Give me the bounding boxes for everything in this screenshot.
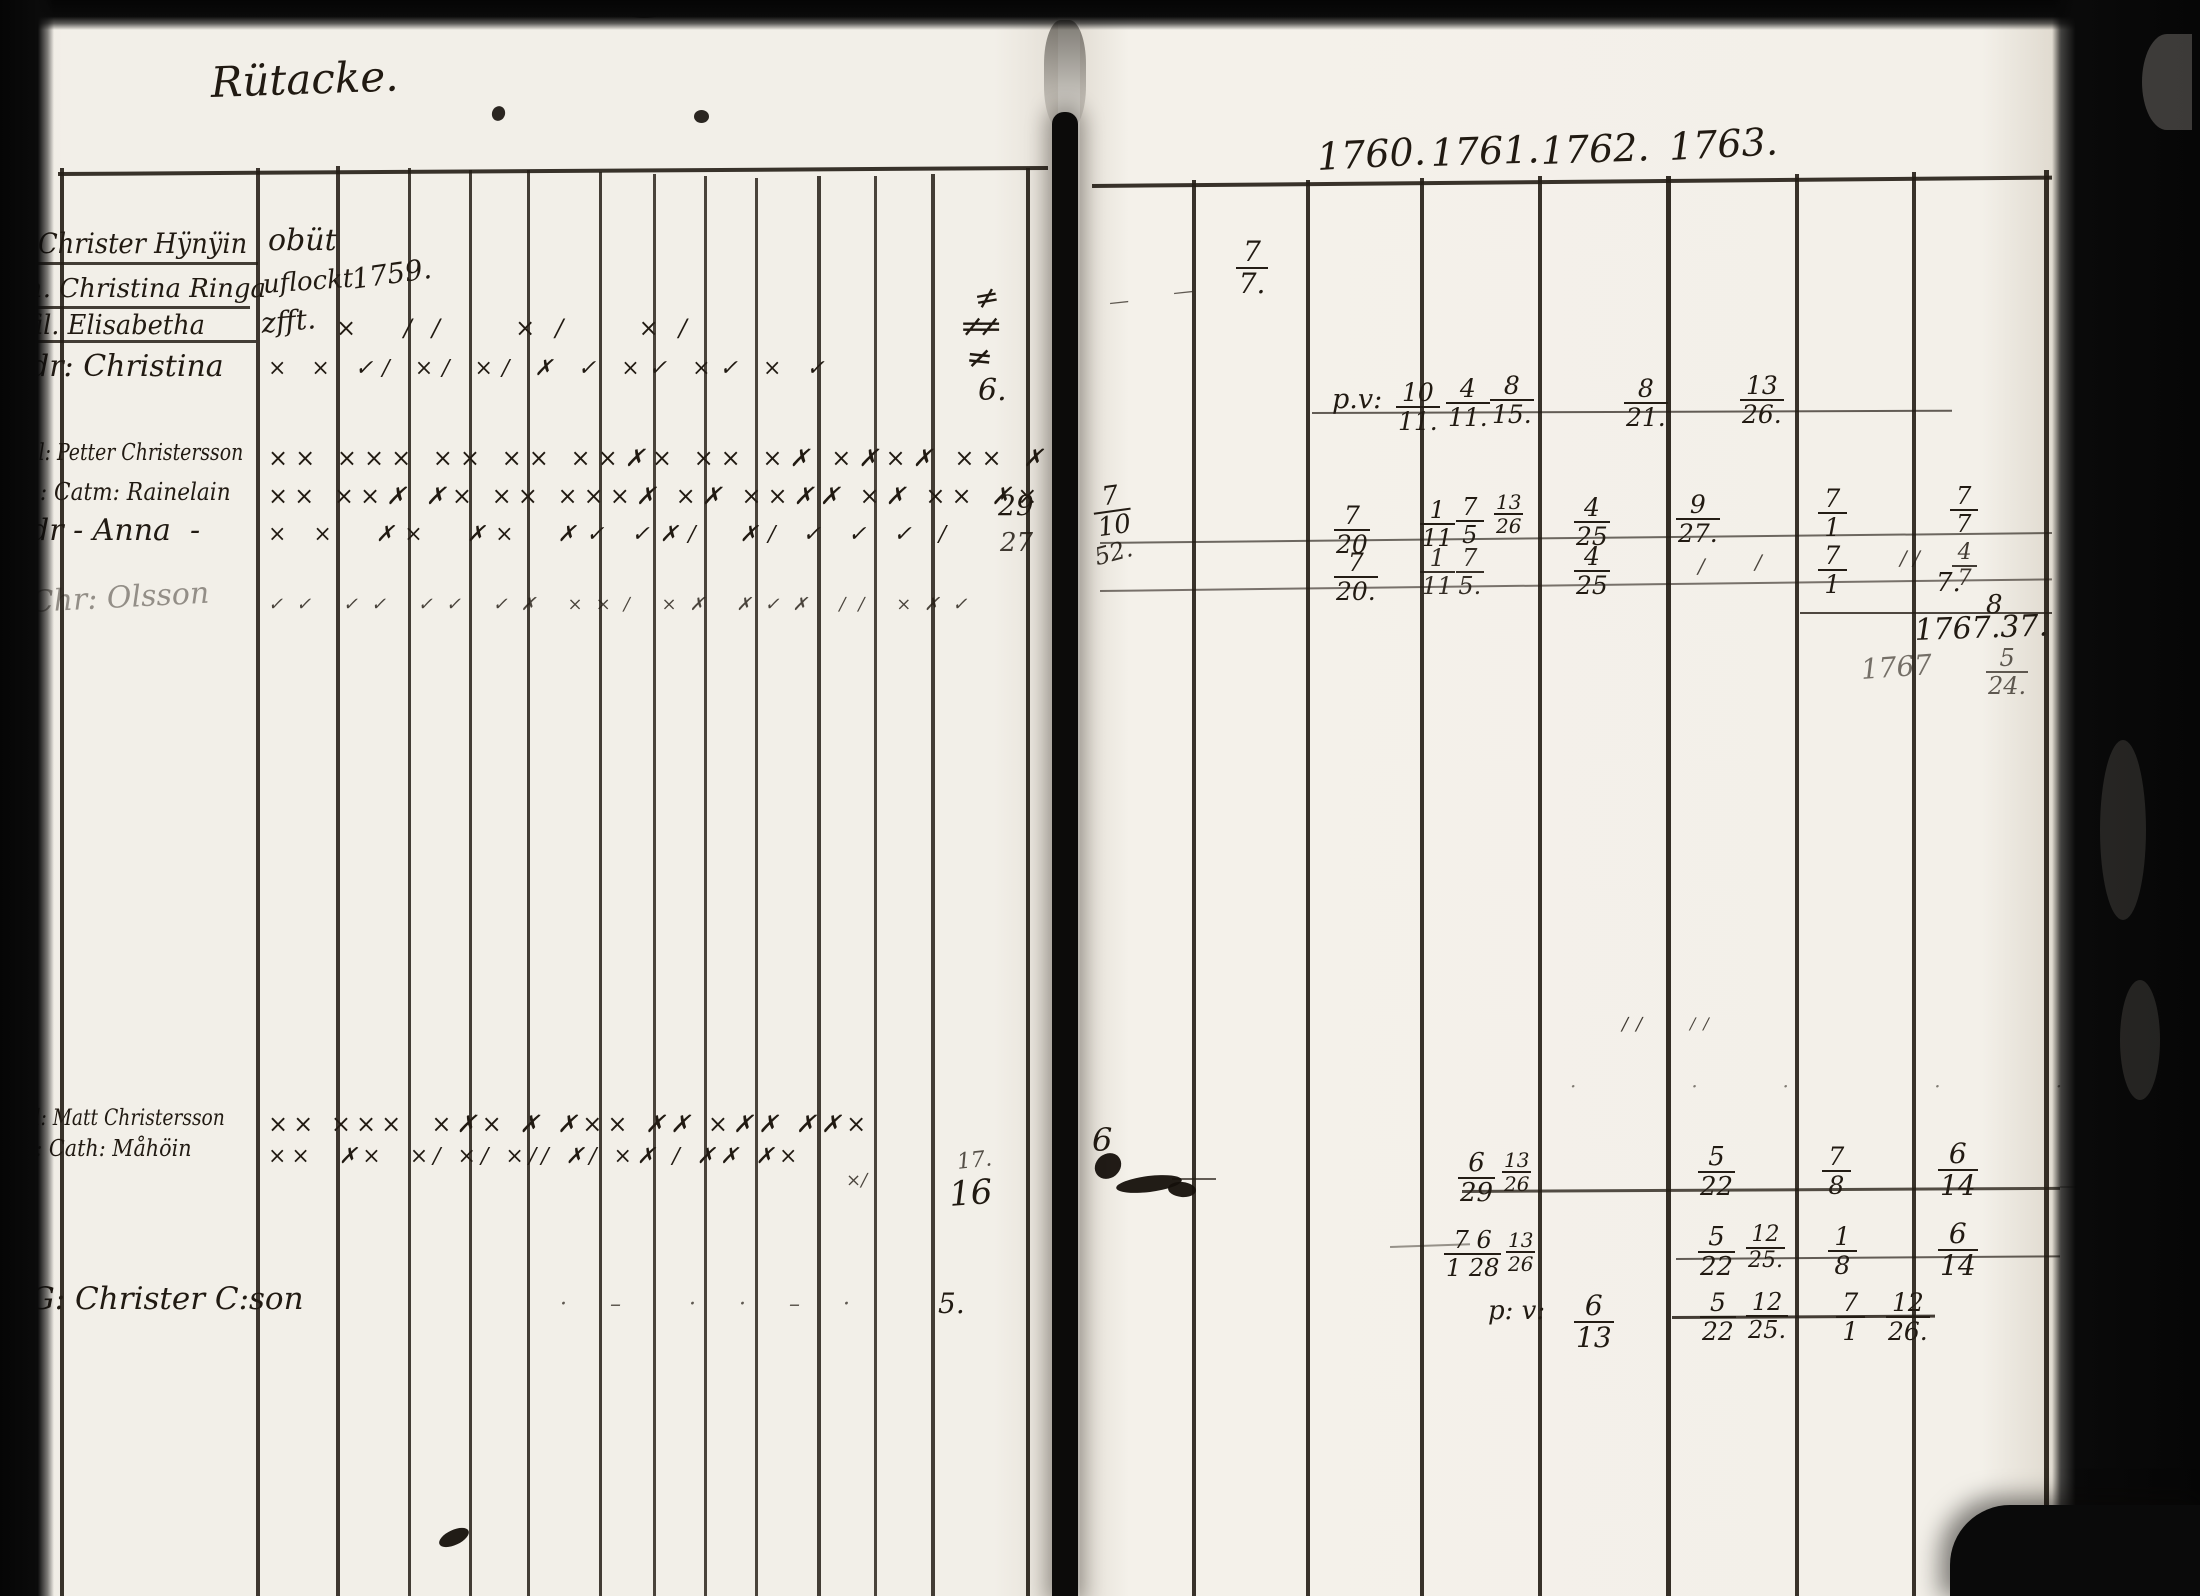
record-name: Christer Hÿnÿin bbox=[38, 230, 247, 258]
pen-tick: ∕∕ bbox=[1690, 1016, 1717, 1032]
column-rule bbox=[1026, 168, 1030, 1596]
date-fraction: 425 bbox=[1574, 544, 1610, 598]
column-rule bbox=[1192, 180, 1196, 1596]
scan-edge-top bbox=[0, 0, 2200, 30]
column-rule bbox=[1795, 174, 1799, 1596]
column-rule bbox=[653, 174, 656, 1596]
record-note: uflockt bbox=[262, 266, 354, 298]
name-underline bbox=[30, 262, 258, 265]
date-fraction: 821. bbox=[1624, 376, 1668, 430]
date-fraction: 111 bbox=[1420, 498, 1455, 550]
entry-rule bbox=[1800, 612, 2052, 614]
mark-row: ×∕ bbox=[846, 1172, 867, 1190]
column-rule bbox=[874, 176, 877, 1596]
number: 5. bbox=[938, 1290, 965, 1318]
date-fraction: 524. bbox=[1986, 646, 2028, 698]
name-underline bbox=[26, 306, 250, 309]
column-rule bbox=[2044, 170, 2049, 1596]
page-title: Rütacke. bbox=[210, 55, 399, 104]
pen-tick: ∕ ∕ bbox=[1900, 548, 1920, 568]
date-fraction: 815. bbox=[1490, 373, 1534, 427]
ink-blot bbox=[694, 110, 709, 123]
date-fraction: 1011. bbox=[1396, 380, 1440, 434]
pen-dash: — bbox=[1172, 280, 1194, 302]
date-fraction: 47 bbox=[1952, 542, 1977, 590]
column-rule bbox=[336, 166, 340, 1596]
column-rule bbox=[1912, 172, 1916, 1596]
date-fraction: 614 bbox=[1938, 1220, 1978, 1280]
mark-row: × ∕∕ ×∕ ×∕ bbox=[336, 316, 707, 340]
date-fraction: 1326 bbox=[1506, 1230, 1535, 1274]
mark-row: × × ✓∕ ×∕ ×∕ ✗ ✓ ×✓ ×✓ × ✓ bbox=[268, 358, 834, 380]
column-rule bbox=[527, 170, 530, 1596]
scan-smudge bbox=[2100, 740, 2146, 920]
record-note: zfft. bbox=[260, 305, 317, 338]
column-rule bbox=[60, 168, 64, 1596]
date-fraction: 522 bbox=[1698, 1144, 1735, 1200]
date-fraction: 71 bbox=[1818, 543, 1847, 597]
scan-smudge bbox=[2120, 980, 2160, 1100]
pen-tick: ∕ bbox=[1755, 552, 1762, 572]
page-gutter-fold bbox=[1052, 112, 1078, 1596]
date-fraction: 1326. bbox=[1740, 373, 1784, 427]
record-name: G: Christer C:son bbox=[30, 1284, 304, 1315]
mark-row: ×× ✗× ×∕ ×∕ ×∕∕ ✗∕ ×✗ ∕ ✗✗ ✗× bbox=[268, 1146, 802, 1168]
record-note: obüt bbox=[268, 226, 337, 256]
column-rule bbox=[1538, 176, 1542, 1596]
date-fraction: 1326 bbox=[1494, 492, 1523, 536]
date-fraction: 629 bbox=[1458, 1150, 1495, 1206]
number: 16 bbox=[948, 1175, 994, 1212]
column-rule bbox=[1420, 178, 1424, 1596]
column-rule bbox=[704, 176, 707, 1596]
mark-row: × × ✗× ✗× ✗✓ ✓✗∕ ✗∕ ✓ ✓ ✓ ∕ bbox=[268, 524, 956, 546]
name-underline bbox=[26, 340, 256, 343]
year-label: 1762. bbox=[1540, 128, 1650, 170]
date-fraction: 75. bbox=[1456, 546, 1484, 598]
date-fraction: 425 bbox=[1574, 495, 1610, 549]
record-name: fil: Petter Christersson bbox=[26, 442, 243, 465]
column-rule bbox=[408, 168, 411, 1596]
date-fraction: 1225. bbox=[1746, 1224, 1785, 1272]
column-rule bbox=[817, 176, 821, 1596]
pen-tick: ∕ bbox=[1698, 556, 1705, 576]
column-rule bbox=[469, 170, 472, 1596]
date-fraction: 411. bbox=[1446, 376, 1490, 430]
date-fraction: 613 bbox=[1574, 1292, 1614, 1352]
year-total: 1767 bbox=[1860, 651, 1933, 684]
number: 17. bbox=[956, 1148, 993, 1174]
abbrev-pv: p.v: bbox=[1332, 386, 1382, 413]
date-fraction: 77. bbox=[1236, 238, 1268, 298]
number: 6 bbox=[1092, 1124, 1112, 1156]
column-rule bbox=[1306, 180, 1310, 1596]
date-fraction: 522 bbox=[1698, 1224, 1735, 1280]
date-fraction: 18 bbox=[1828, 1224, 1857, 1278]
record-name: dr - Anna - bbox=[30, 516, 200, 546]
column-rule bbox=[599, 172, 602, 1596]
pen-dash: — bbox=[1108, 290, 1130, 312]
date-fraction: 720. bbox=[1334, 550, 1378, 604]
date-fraction: 71 bbox=[1818, 486, 1847, 540]
abbrev-pv: p: v: bbox=[1488, 1298, 1545, 1324]
pen-tick: ∕∕ bbox=[1622, 1016, 1650, 1034]
date-fraction: 111 bbox=[1420, 546, 1455, 598]
column-rule bbox=[755, 178, 758, 1596]
year-label: 1763. bbox=[1668, 122, 1779, 166]
column-rule bbox=[931, 174, 935, 1596]
scan-edge-left bbox=[0, 0, 54, 1596]
column-rule bbox=[1666, 176, 1671, 1596]
date-fraction: 77 bbox=[1950, 484, 1978, 536]
date-fraction: 7 61 28 bbox=[1444, 1228, 1501, 1280]
year-label: 1760. bbox=[1316, 132, 1427, 176]
mark-row: ×× ××× ×✗× ✗ ✗×× ✗✗ ×✗✗ ✗✗× bbox=[268, 1112, 871, 1136]
year-label: 1761. bbox=[1430, 130, 1540, 172]
scan-edge-corner bbox=[1950, 1505, 2200, 1596]
mark-row: · – · · – · bbox=[560, 1294, 868, 1316]
date-fraction: 614 bbox=[1938, 1140, 1978, 1200]
record-name: h: Catm: Rainelain bbox=[26, 480, 231, 504]
year-total: 1767.37. bbox=[1914, 611, 2049, 646]
page-corner-highlight bbox=[2142, 34, 2192, 130]
column-rule bbox=[256, 168, 260, 1596]
date-fraction: 1326 bbox=[1502, 1150, 1531, 1194]
tally-mark: ≠ bbox=[965, 340, 995, 375]
date-fraction: 710 bbox=[1090, 481, 1135, 542]
number: 6. bbox=[978, 376, 1007, 406]
scanned-register-spread: Rütacke.1760.1761.1762.1763.Christer Hÿn… bbox=[0, 0, 2200, 1596]
